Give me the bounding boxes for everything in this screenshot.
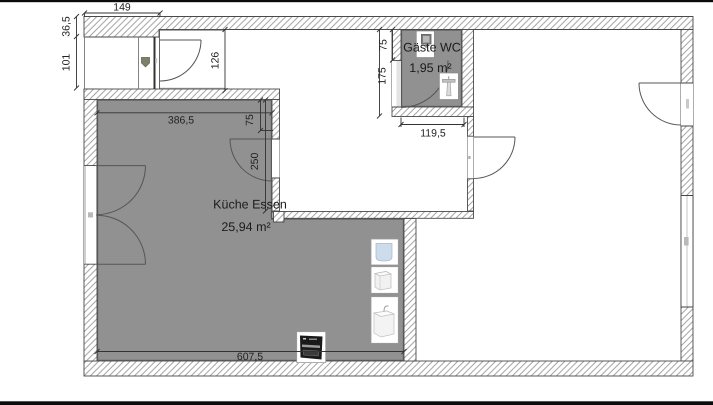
svg-text:25,94 m²: 25,94 m² [221,220,270,234]
svg-text:75: 75 [244,114,256,126]
svg-text:250: 250 [249,152,261,170]
svg-text:36,5: 36,5 [61,16,73,37]
svg-text:386,5: 386,5 [168,115,194,127]
svg-text:75: 75 [378,39,390,51]
svg-text:1,95 m²: 1,95 m² [409,61,451,75]
svg-text:Küche Essen: Küche Essen [213,198,287,212]
svg-text:126: 126 [210,52,222,70]
svg-text:119,5: 119,5 [420,128,446,140]
svg-text:149: 149 [113,2,131,14]
svg-text:607,5: 607,5 [237,351,263,363]
svg-text:Gäste WC: Gäste WC [403,41,461,55]
svg-text:175: 175 [377,67,389,85]
svg-text:101: 101 [61,54,73,72]
